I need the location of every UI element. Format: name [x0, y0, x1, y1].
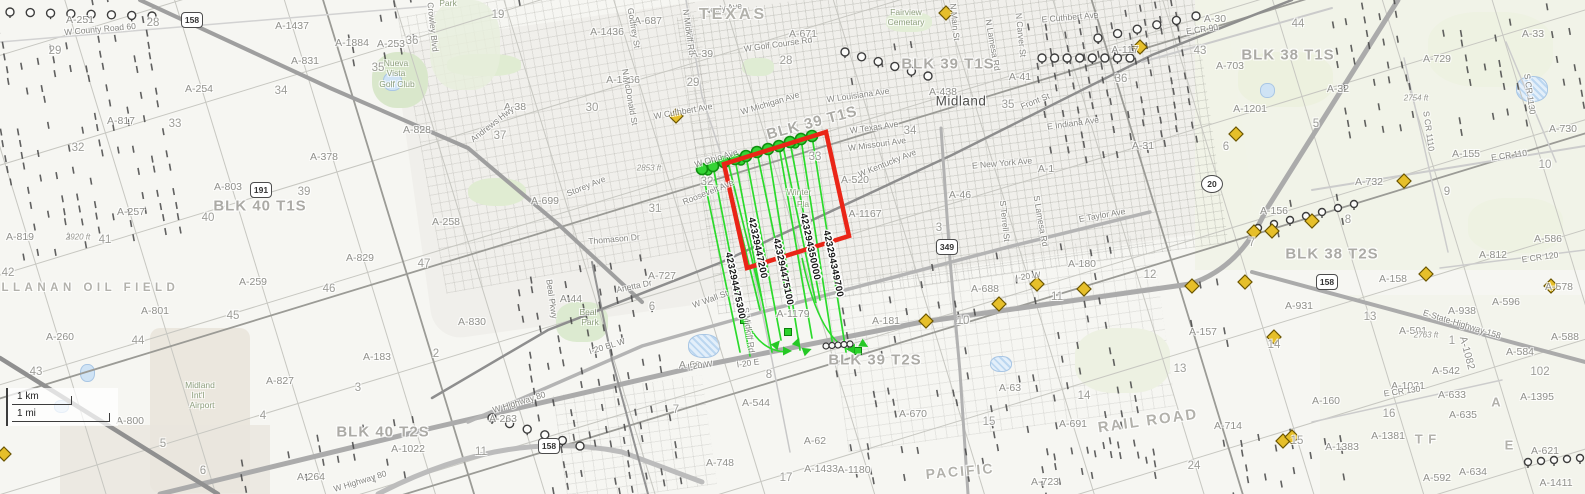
scale-bar-mi: 1 mi: [12, 408, 110, 422]
scale-mi-label: 1 mi: [17, 408, 36, 419]
scale-bar: 1 km 1 mi: [6, 388, 118, 426]
survey-grid: [0, 0, 1585, 494]
map-graphics-layer: [0, 0, 1585, 494]
scale-km-label: 1 km: [17, 391, 39, 402]
map-canvas[interactable]: 2829353433323940414243444546472193637303…: [0, 0, 1585, 494]
scale-bar-km: 1 km: [12, 391, 72, 405]
well-clusters: [0, 0, 1585, 494]
roads: [0, 0, 1585, 494]
